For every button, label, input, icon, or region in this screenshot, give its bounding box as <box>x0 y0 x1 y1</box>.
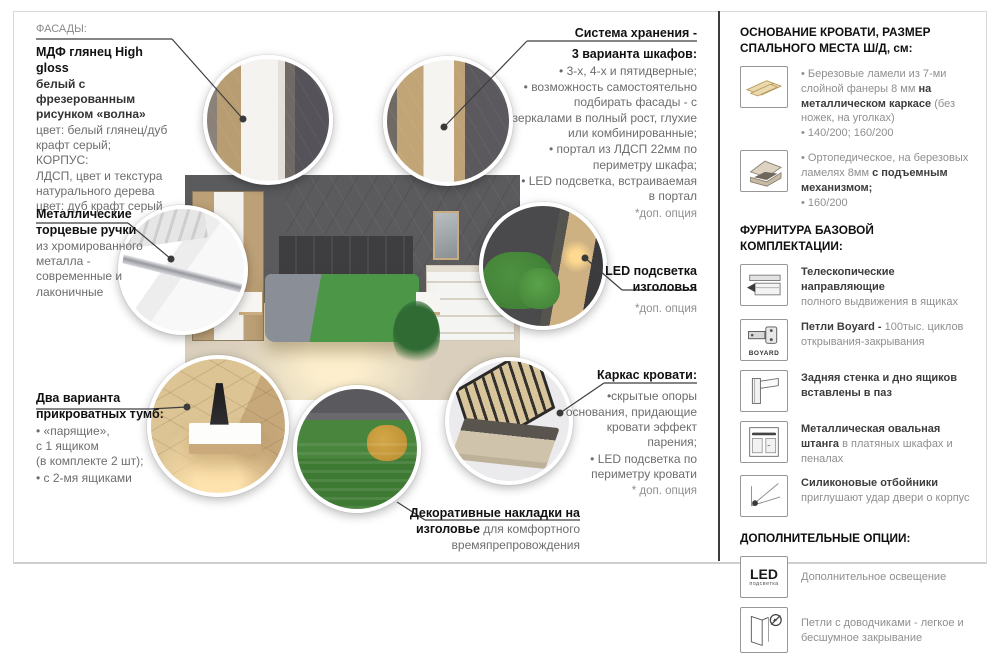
text-segment-bold: Петли Boyard - <box>801 321 885 333</box>
hardware-item-groove: Задняя стенка и дно ящиков вставлены в п… <box>740 370 977 412</box>
storage-bullet: • 3-х, 4-х и пятидверные; <box>512 64 697 79</box>
storage-title-1: Система хранения - <box>512 25 697 41</box>
soft-close-icon <box>740 607 788 653</box>
handles-title: Металлические торцевые ручки <box>36 206 154 239</box>
circle-wardrobe-facade-detail <box>203 55 333 185</box>
bed-frame-bullet: • LED подсветка по периметру кровати <box>557 452 697 483</box>
callout-led-headboard: LED подсветка изголовья *доп. опция <box>547 263 697 316</box>
storage-bullet: • LED подсветка, встраиваемая в портал <box>512 174 697 205</box>
hardware-item-slides-text: Телескопические направляющие полного выд… <box>801 264 977 310</box>
storage-bullet: • возможность самостоятельно подбирать ф… <box>512 80 697 141</box>
option-item-led-text: Дополнительное освещение <box>801 569 946 585</box>
facades-subtitle: белый с фрезерованным рисунком «волна» <box>36 77 178 123</box>
storage-bullet: • портал из ЛДСП 22мм по периметру шкафа… <box>512 142 697 173</box>
callout-bed-frame: Каркас кровати: •скрытые опоры основания… <box>557 367 697 499</box>
facades-label: ФАСАДЫ: <box>36 22 178 36</box>
circle-decor-pads-detail <box>293 385 421 513</box>
silicone-damper-icon-graphic <box>744 479 784 513</box>
base-item-lift-text: • Ортопедическое, на березовых ламелях 8… <box>801 150 977 210</box>
led-icon-subtext: подсветка <box>749 581 778 587</box>
hardware-item-hinges-text: Петли Boyard - 100тыс. циклов открывания… <box>801 319 977 361</box>
hardware-item-slides: Телескопические направляющие полного выд… <box>740 264 977 310</box>
bed-frame-bullet: •скрытые опоры основания, придающие кров… <box>557 389 697 450</box>
groove-panel-icon <box>740 370 788 412</box>
hardware-item-rail-text: Металлическая овальная штанга в платяных… <box>801 421 977 467</box>
storage-footnote: *доп. опция <box>512 207 697 222</box>
circle-bed-frame-detail <box>445 357 573 485</box>
hardware-item-damper-text: Силиконовые отбойники приглушают удар дв… <box>801 475 970 517</box>
hardware-section-title: ФУРНИТУРА БАЗОВОЙ КОМПЛЕКТАЦИИ: <box>740 223 977 255</box>
base-item-slatted-text: • Березовые ламели из 7-ми слойной фанер… <box>801 66 977 141</box>
option-item-softclose-text: Петли с доводчиками - легкое и бесшумное… <box>801 615 977 646</box>
nightstands-bullet: • «парящие», с 1 ящиком (в комплекте 2 ш… <box>36 424 171 470</box>
led-footnote: *доп. опция <box>547 302 697 317</box>
led-icon-text: LED <box>750 567 778 581</box>
led-light-icon: LED подсветка <box>740 556 788 598</box>
hinge-boyard-icon: BOYARD <box>740 319 788 361</box>
photo-headboard <box>279 236 413 274</box>
text-segment-bold: Телескопические направляющие <box>801 265 977 295</box>
boyard-label: BOYARD <box>749 350 780 357</box>
led-title-2: изголовья <box>547 279 697 295</box>
led-title-1: LED подсветка <box>547 263 697 279</box>
photo-plant <box>393 301 440 369</box>
callout-handles: Металлические торцевые ручки из хромиров… <box>36 206 154 300</box>
callout-nightstands: Два варианта прикроватных тумб: • «парящ… <box>36 390 171 486</box>
hardware-item-hinges: BOYARD Петли Boyard - 100тыс. циклов отк… <box>740 319 977 361</box>
circle-wardrobe-portal-detail <box>383 56 513 186</box>
soft-close-icon-graphic <box>744 611 784 649</box>
hardware-item-groove-text: Задняя стенка и дно ящиков вставлены в п… <box>801 370 977 412</box>
oval-rail-icon <box>740 421 788 463</box>
base-item-sizes: • 160/200 <box>801 196 977 211</box>
hardware-item-rail: Металлическая овальная штанга в платяных… <box>740 421 977 467</box>
right-panel: ОСНОВАНИЕ КРОВАТИ, РАЗМЕР СПАЛЬНОГО МЕСТ… <box>718 11 985 561</box>
callout-facades: ФАСАДЫ: МДФ глянец High gloss белый с фр… <box>36 22 178 215</box>
oval-rail-icon-graphic <box>744 425 784 459</box>
facades-line: ЛДСП, цвет и текстура натурального дерев… <box>36 169 178 200</box>
drawer-slides-icon <box>740 264 788 306</box>
storage-title-2: 3 варианта шкафов: <box>512 46 697 62</box>
text-segment-bold: Силиконовые отбойники <box>801 476 970 491</box>
option-item-led: LED подсветка Дополнительное освещение <box>740 556 977 598</box>
base-item-lift: • Ортопедическое, на березовых ламелях 8… <box>740 150 977 210</box>
facades-line: КОРПУС: <box>36 153 178 168</box>
slatted-base-icon-graphic <box>744 70 784 104</box>
facades-title: МДФ глянец High gloss <box>36 44 178 77</box>
base-section-title: ОСНОВАНИЕ КРОВАТИ, РАЗМЕР СПАЛЬНОГО МЕСТ… <box>740 25 977 57</box>
callout-storage: Система хранения - 3 варианта шкафов: • … <box>512 25 697 221</box>
nightstands-bullet: • с 2-мя ящиками <box>36 471 171 486</box>
options-section-title: ДОПОЛНИТЕЛЬНЫЕ ОПЦИИ: <box>740 531 977 547</box>
base-item-slatted: • Березовые ламели из 7-ми слойной фанер… <box>740 66 977 141</box>
facades-line: цвет: белый глянец/дуб крафт серый; <box>36 123 178 154</box>
text-segment: полного выдвижения в ящиках <box>801 296 958 308</box>
lift-bed-icon <box>740 150 788 192</box>
slatted-base-icon <box>740 66 788 108</box>
handles-body: из хромированного металла - современные … <box>36 239 154 300</box>
bed-frame-title: Каркас кровати: <box>557 367 697 383</box>
nightstands-title: Два варианта прикроватных тумб: <box>36 390 171 423</box>
silicone-damper-icon <box>740 475 788 517</box>
text-segment: приглушают удар двери о корпус <box>801 492 970 504</box>
hardware-item-damper: Силиконовые отбойники приглушают удар дв… <box>740 475 977 517</box>
bed-frame-footnote: * доп. опция <box>557 484 697 499</box>
text-segment-bold: Задняя стенка и дно ящиков вставлены в п… <box>801 371 977 401</box>
callout-decor-pads: Декоративные накладки на изголовье для к… <box>390 505 580 553</box>
photo-mirror <box>433 211 459 260</box>
lift-bed-icon-graphic <box>744 154 784 188</box>
groove-panel-icon-graphic <box>744 374 784 408</box>
hinge-boyard-icon-graphic <box>744 323 784 349</box>
option-item-softclose: Петли с доводчиками - легкое и бесшумное… <box>740 607 977 653</box>
base-item-sizes: • 140/200; 160/200 <box>801 126 977 141</box>
drawer-slides-icon-graphic <box>744 268 784 302</box>
